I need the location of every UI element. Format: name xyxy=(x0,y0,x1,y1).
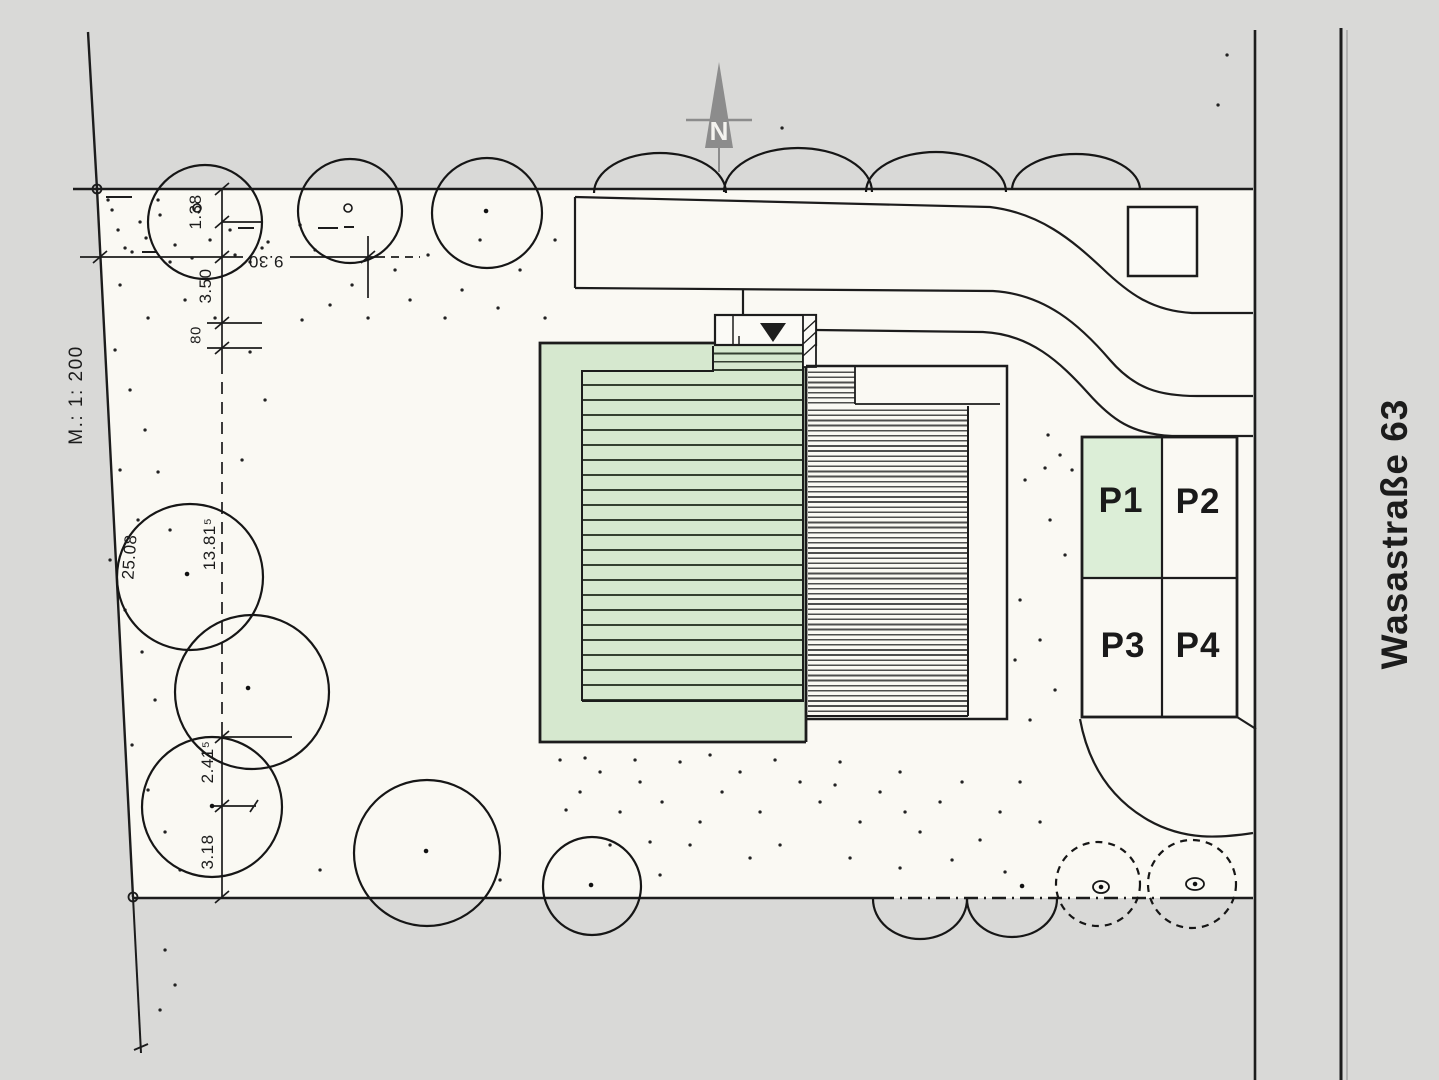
parking-label-p4: P4 xyxy=(1176,626,1221,666)
dim-label-width-top: 9.30 xyxy=(248,251,283,271)
dim-label-seg-mid: 13.81⁵ xyxy=(200,518,220,571)
street-name-label: Wasastraße 63 xyxy=(1374,399,1416,670)
north-arrow-label: N xyxy=(710,116,729,146)
tree-center-dots xyxy=(187,211,1195,887)
tree-arc xyxy=(1012,154,1140,190)
parking-label-p3: P3 xyxy=(1101,626,1146,666)
parking-grid xyxy=(1082,437,1237,717)
tree-arc xyxy=(873,899,967,939)
dim-label-seg-e: 3.18 xyxy=(198,834,218,869)
dim-label-seg-d: 2.41⁵ xyxy=(198,741,218,784)
north-arrow: N xyxy=(686,62,752,172)
main-building-outline xyxy=(540,343,806,742)
tree-arc xyxy=(866,152,1006,192)
tree-arc xyxy=(967,899,1057,937)
tree xyxy=(117,504,263,650)
dim-label-seg-a: 1.38 xyxy=(186,194,206,229)
dim-label-boundary-left: 25.08 xyxy=(118,534,141,580)
entrance-box xyxy=(715,315,816,367)
parking-label-p2: P2 xyxy=(1176,482,1221,522)
site-plan-canvas: N M.: 1: 200 Wasastraße 63 1.38 3.50 80 … xyxy=(0,0,1439,1080)
bush-dashed xyxy=(1148,840,1236,928)
scale-label: M.: 1: 200 xyxy=(66,345,88,445)
parking-label-p1: P1 xyxy=(1099,481,1144,521)
street-edge-lines xyxy=(1255,28,1347,1080)
tree-center-ring xyxy=(344,204,352,212)
side-building-outline xyxy=(806,366,1007,719)
bush-dashed xyxy=(1056,842,1140,926)
tree-arc xyxy=(594,153,726,193)
trees xyxy=(117,148,1236,939)
site-boundary xyxy=(73,32,1253,1053)
entrance-stair-strip xyxy=(803,315,816,367)
stipple-dashes xyxy=(106,197,354,252)
dim-label-seg-c: 80 xyxy=(188,326,205,344)
tree-arc xyxy=(724,148,872,192)
garage-square xyxy=(1128,207,1197,276)
dim-label-seg-b: 3.50 xyxy=(196,268,216,303)
